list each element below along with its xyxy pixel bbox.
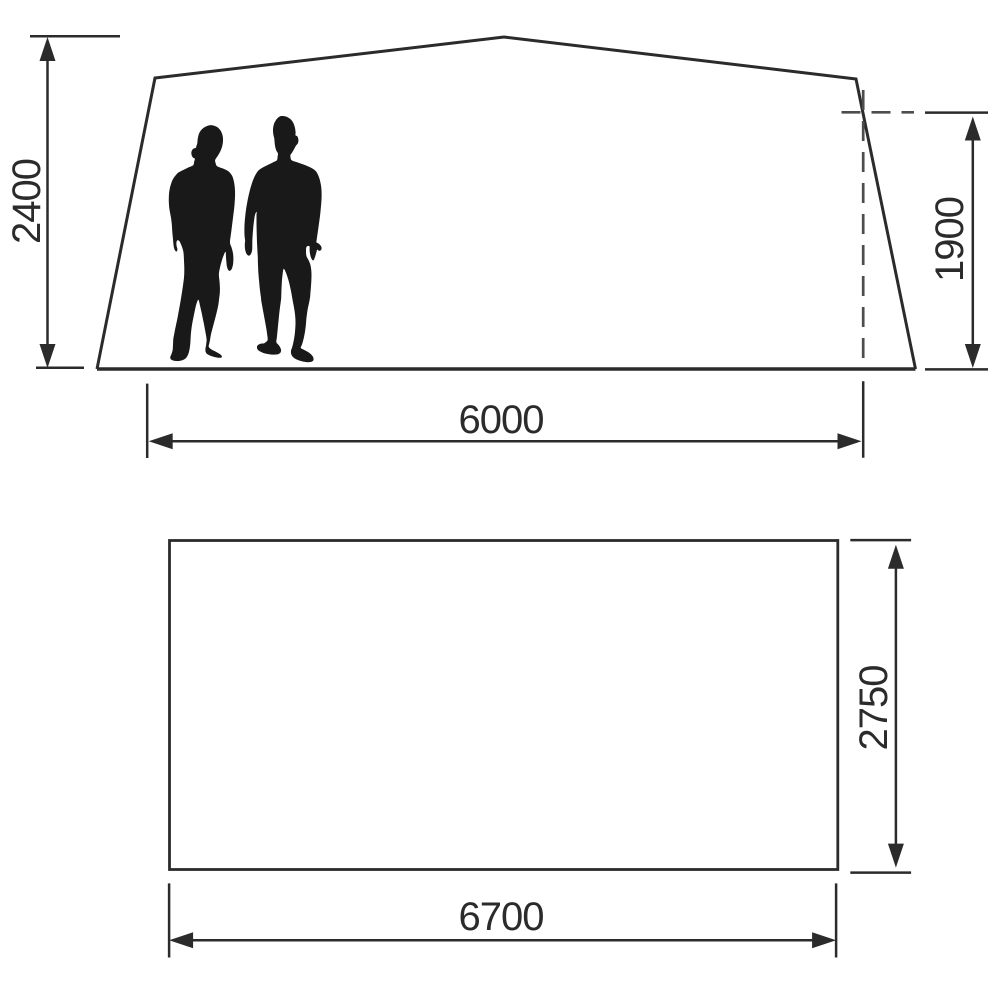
svg-text:2750: 2750 <box>852 666 896 751</box>
svg-text:2400: 2400 <box>5 159 49 244</box>
svg-text:6700: 6700 <box>459 895 544 939</box>
svg-text:1900: 1900 <box>928 197 972 282</box>
svg-text:6000: 6000 <box>459 398 544 442</box>
